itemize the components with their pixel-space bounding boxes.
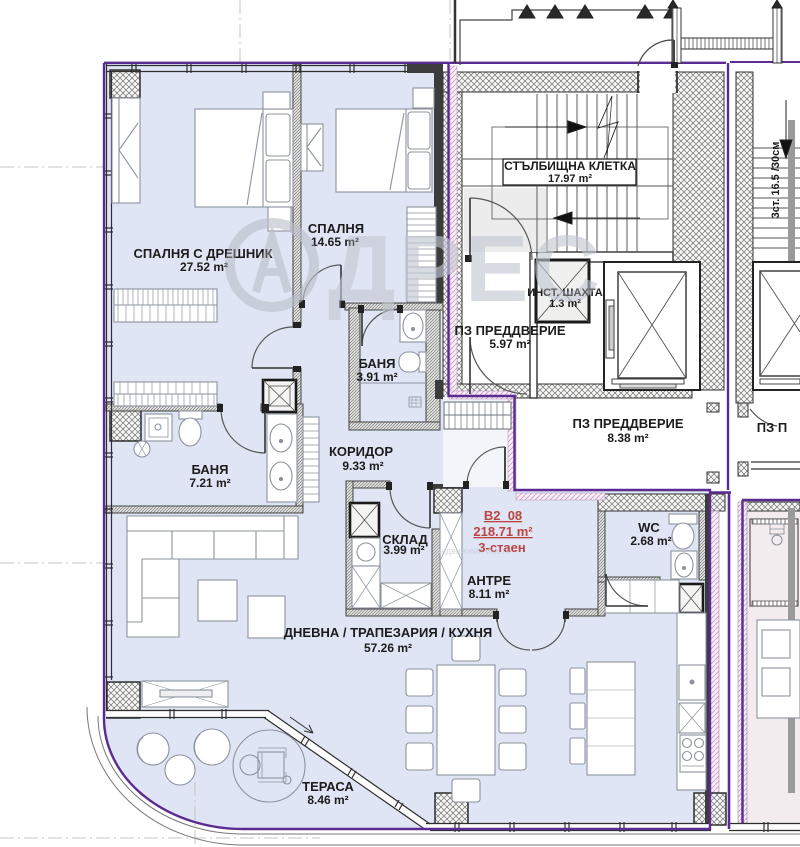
- svg-text:ТЕРАСА: ТЕРАСА: [302, 779, 354, 794]
- svg-text:ДРЕС: ДРЕС: [328, 216, 603, 322]
- svg-text:2.68 m²: 2.68 m²: [630, 534, 671, 548]
- svg-text:БАНЯ: БАНЯ: [359, 356, 396, 371]
- svg-text:218.71 m²: 218.71 m²: [473, 524, 533, 539]
- svg-text:8.11 m²: 8.11 m²: [469, 587, 510, 601]
- svg-text:8.46 m²: 8.46 m²: [307, 793, 348, 807]
- svg-text:СПАЛНЯ С ДРЕШНИК: СПАЛНЯ С ДРЕШНИК: [133, 246, 272, 261]
- svg-text:B2_08: B2_08: [484, 508, 522, 523]
- svg-text:3ст. 16.5 /30см: 3ст. 16.5 /30см: [770, 142, 782, 219]
- svg-text:57.26 m²: 57.26 m²: [364, 641, 412, 655]
- svg-text:17.97 m²: 17.97 m²: [548, 173, 592, 185]
- svg-text:3.99 m²: 3.99 m²: [383, 543, 424, 557]
- svg-text:ПЗ ПРЕДДВЕРИЕ: ПЗ ПРЕДДВЕРИЕ: [454, 323, 565, 338]
- svg-text:КОРИДОР: КОРИДОР: [329, 444, 393, 459]
- svg-text:ДНЕВНА / ТРАПЕЗАРИЯ / КУХНЯ: ДНЕВНА / ТРАПЕЗАРИЯ / КУХНЯ: [284, 625, 493, 640]
- svg-text:9.33 m²: 9.33 m²: [342, 459, 383, 473]
- svg-text:АНТРЕ: АНТРЕ: [467, 573, 511, 588]
- svg-text:8.38 m²: 8.38 m²: [607, 431, 648, 445]
- svg-text:недвижими имоти: недвижими имоти: [436, 546, 511, 556]
- svg-text:БАНЯ: БАНЯ: [192, 462, 229, 477]
- svg-text:3.91 m²: 3.91 m²: [356, 370, 397, 384]
- svg-text:ПЗ ПРЕДДВЕРИЕ: ПЗ ПРЕДДВЕРИЕ: [572, 416, 683, 431]
- svg-text:27.52 m²: 27.52 m²: [180, 260, 228, 274]
- svg-text:7.21 m²: 7.21 m²: [189, 476, 230, 490]
- svg-text:WC: WC: [638, 520, 660, 535]
- svg-text:ПЗ П: ПЗ П: [757, 420, 787, 435]
- svg-text:СТЪЛБИЩНА КЛЕТКА: СТЪЛБИЩНА КЛЕТКА: [504, 159, 636, 173]
- svg-text:5.97 m²: 5.97 m²: [489, 337, 530, 351]
